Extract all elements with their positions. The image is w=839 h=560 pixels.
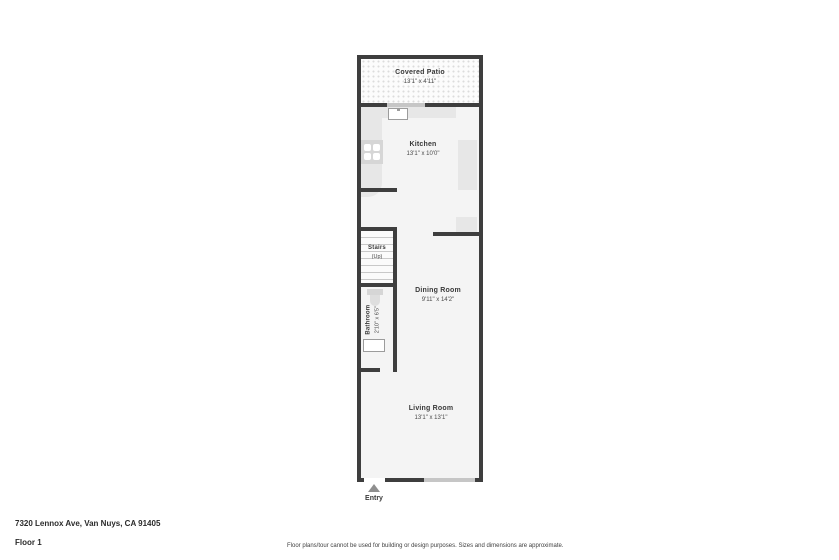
bathroom-right-wall bbox=[393, 287, 397, 372]
stove-icon bbox=[361, 140, 383, 164]
burner-icon bbox=[364, 153, 371, 160]
kitchen-counter-right bbox=[456, 217, 477, 232]
bathroom-sink-icon bbox=[363, 339, 385, 352]
burner-icon bbox=[373, 144, 380, 151]
floorplan-page: Covered Patio 13'1" x 4'11" Kitchen 13'1… bbox=[0, 0, 839, 560]
bottom-wall-corner-left bbox=[357, 478, 364, 482]
burner-icon bbox=[373, 153, 380, 160]
entry-arrow-icon bbox=[368, 484, 380, 492]
stairs-right-wall bbox=[393, 227, 397, 287]
wall-top bbox=[357, 55, 483, 59]
toilet-bowl-icon bbox=[370, 295, 380, 306]
disclaimer-text: Floor plans/tour cannot be used for buil… bbox=[287, 543, 577, 549]
stairs-treads bbox=[361, 231, 393, 283]
entry-label: Entry bbox=[351, 495, 397, 502]
floor-number-label: Floor 1 bbox=[15, 538, 42, 547]
kitchen-hall-wall bbox=[357, 188, 397, 192]
bottom-wall-corner-right bbox=[475, 478, 483, 482]
bottom-wall-mid bbox=[385, 478, 424, 482]
refrigerator-icon bbox=[458, 140, 477, 190]
floorplan: Covered Patio 13'1" x 4'11" Kitchen 13'1… bbox=[357, 55, 483, 482]
living-room-window bbox=[424, 478, 475, 482]
dining-kitchen-wall bbox=[433, 232, 483, 236]
stairs-bath-wall bbox=[357, 283, 397, 287]
covered-patio-area bbox=[361, 59, 479, 103]
burner-icon bbox=[364, 144, 371, 151]
kitchen-sink-icon bbox=[388, 108, 408, 120]
property-address: 7320 Lennox Ave, Van Nuys, CA 91405 bbox=[15, 519, 160, 528]
wall-right bbox=[479, 55, 483, 482]
faucet-icon bbox=[397, 108, 400, 111]
bathroom-bottom-wall bbox=[357, 368, 380, 372]
